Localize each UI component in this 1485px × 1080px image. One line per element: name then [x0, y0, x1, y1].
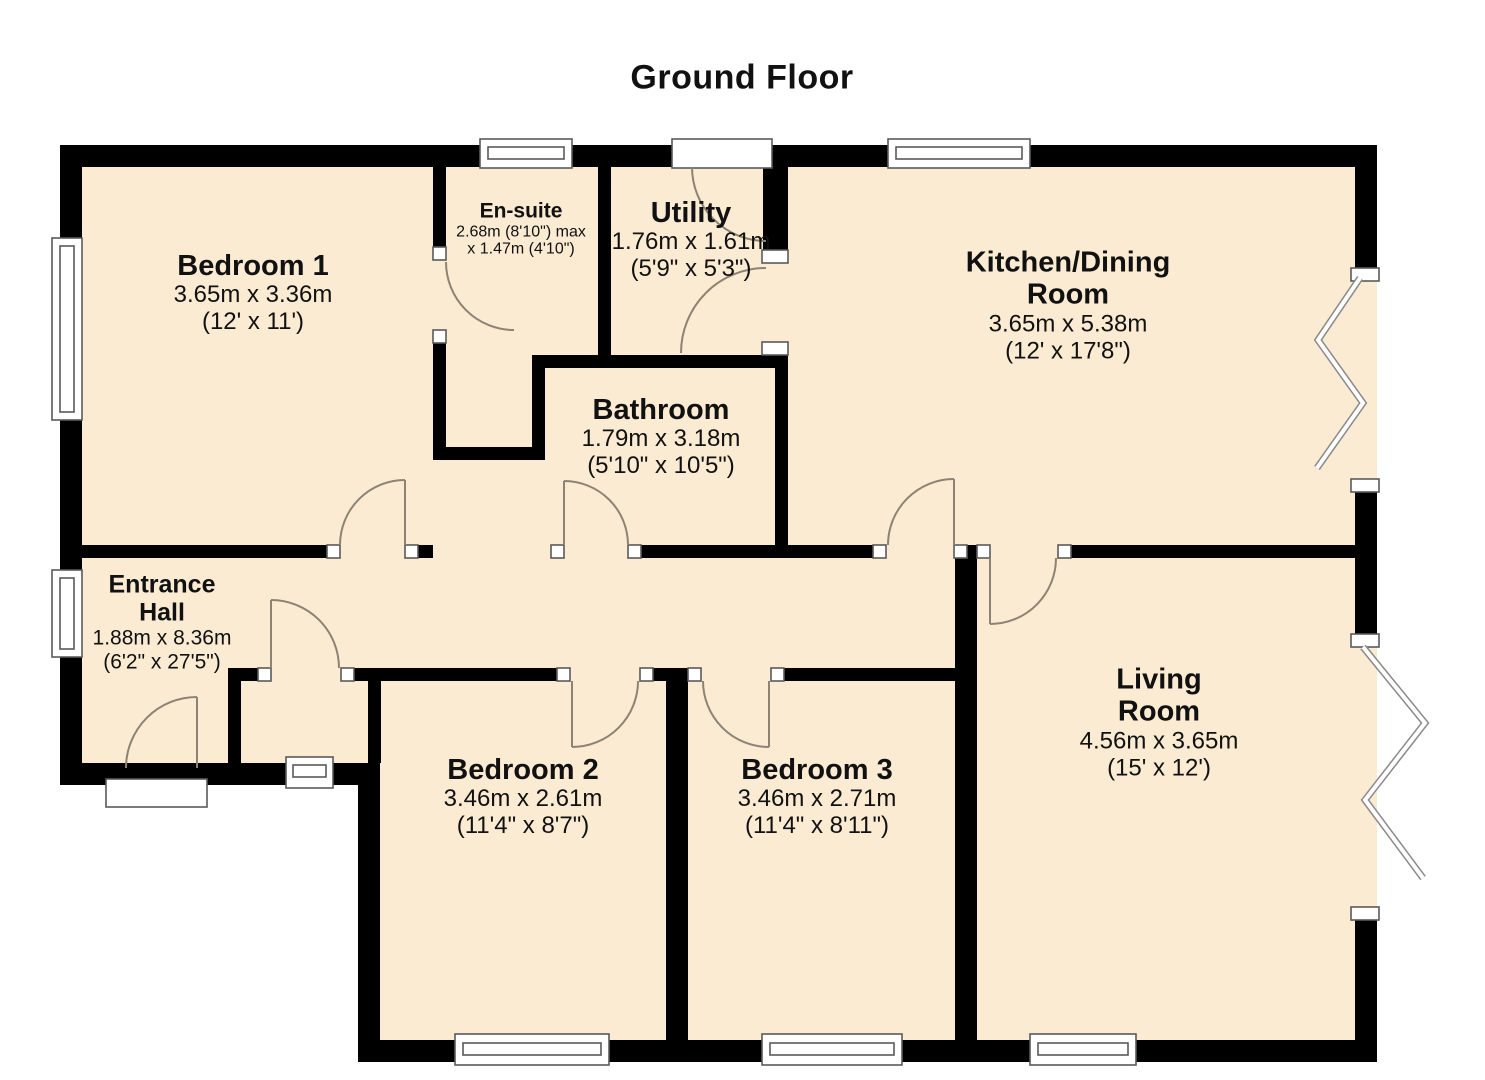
room-dimensions: 4.56m x 3.65m: [1080, 729, 1239, 756]
room-name: Entrance: [93, 570, 232, 598]
room-label-entrance-hall: Entrance Hall 1.88m x 8.36m (6'2" x 27'5…: [93, 570, 232, 673]
window-icon-living-bottom: [1030, 1034, 1136, 1065]
room-dimensions: (15' x 12'): [1080, 755, 1239, 782]
window-icon-bedroom3-bottom: [762, 1034, 902, 1065]
room-dimensions: (6'2" x 27'5"): [93, 650, 232, 674]
room-label-bedroom-2: Bedroom 2 3.46m x 2.61m (11'4" x 8'7"): [444, 754, 603, 840]
room-dimensions: 3.65m x 5.38m: [966, 312, 1171, 339]
room-dimensions: (12' x 11'): [174, 309, 333, 336]
room-label-bedroom-1: Bedroom 1 3.65m x 3.36m (12' x 11'): [174, 250, 333, 336]
room-dimensions: (5'9" x 5'3"): [612, 256, 771, 283]
room-name: Bedroom 2: [444, 754, 603, 786]
room-dimensions: 1.79m x 3.18m: [582, 426, 741, 453]
room-name: Room: [1080, 696, 1239, 728]
window-icon-bedroom1-left: [52, 238, 82, 420]
room-name: Bedroom 3: [738, 754, 897, 786]
room-name: Living: [1080, 664, 1239, 696]
room-label-kitchen-dining-room: Kitchen/Dining Room 3.65m x 5.38m (12' x…: [966, 247, 1171, 366]
floor-plan-page: Ground Floor Bedroom 1 3.65m x 3.36m (12…: [0, 0, 1485, 1080]
room-name: Room: [966, 279, 1171, 311]
window-icon-bedroom2-bottom: [455, 1034, 609, 1065]
room-name: Utility: [612, 197, 771, 229]
room-dimensions: (11'4" x 8'7"): [444, 813, 603, 840]
room-dimensions: (12' x 17'8"): [966, 338, 1171, 365]
room-dimensions: 3.46m x 2.71m: [738, 786, 897, 813]
room-dimensions: (11'4" x 8'11"): [738, 813, 897, 840]
window-icon-ensuite-top: [480, 139, 572, 168]
window-icon-hall-left: [52, 570, 82, 657]
window-icon-kitchen-top: [888, 139, 1030, 168]
room-label-bathroom: Bathroom 1.79m x 3.18m (5'10" x 10'5"): [582, 394, 741, 480]
room-dimensions: 1.88m x 8.36m: [93, 626, 232, 650]
room-dimensions: 3.65m x 3.36m: [174, 282, 333, 309]
room-label-en-suite: En-suite 2.68m (8'10") max x 1.47m (4'10…: [456, 199, 586, 258]
room-name: Bathroom: [582, 394, 741, 426]
floor-plan-canvas: [0, 0, 1485, 1080]
room-name: Hall: [93, 598, 232, 626]
room-name: En-suite: [456, 199, 586, 223]
room-dimensions: x 1.47m (4'10"): [456, 241, 586, 259]
room-dimensions: 2.68m (8'10") max: [456, 223, 586, 241]
room-label-utility: Utility 1.76m x 1.61m (5'9" x 5'3"): [612, 197, 771, 283]
room-dimensions: 3.46m x 2.61m: [444, 786, 603, 813]
room-label-bedroom-3: Bedroom 3 3.46m x 2.71m (11'4" x 8'11"): [738, 754, 897, 840]
room-label-living-room: Living Room 4.56m x 3.65m (15' x 12'): [1080, 664, 1239, 783]
room-name: Bedroom 1: [174, 250, 333, 282]
page-title: Ground Floor: [630, 59, 853, 98]
window-icon-store-bottom: [286, 757, 333, 788]
room-dimensions: (5'10" x 10'5"): [582, 453, 741, 480]
room-dimensions: 1.76m x 1.61m: [612, 229, 771, 256]
room-name: Kitchen/Dining: [966, 247, 1171, 279]
